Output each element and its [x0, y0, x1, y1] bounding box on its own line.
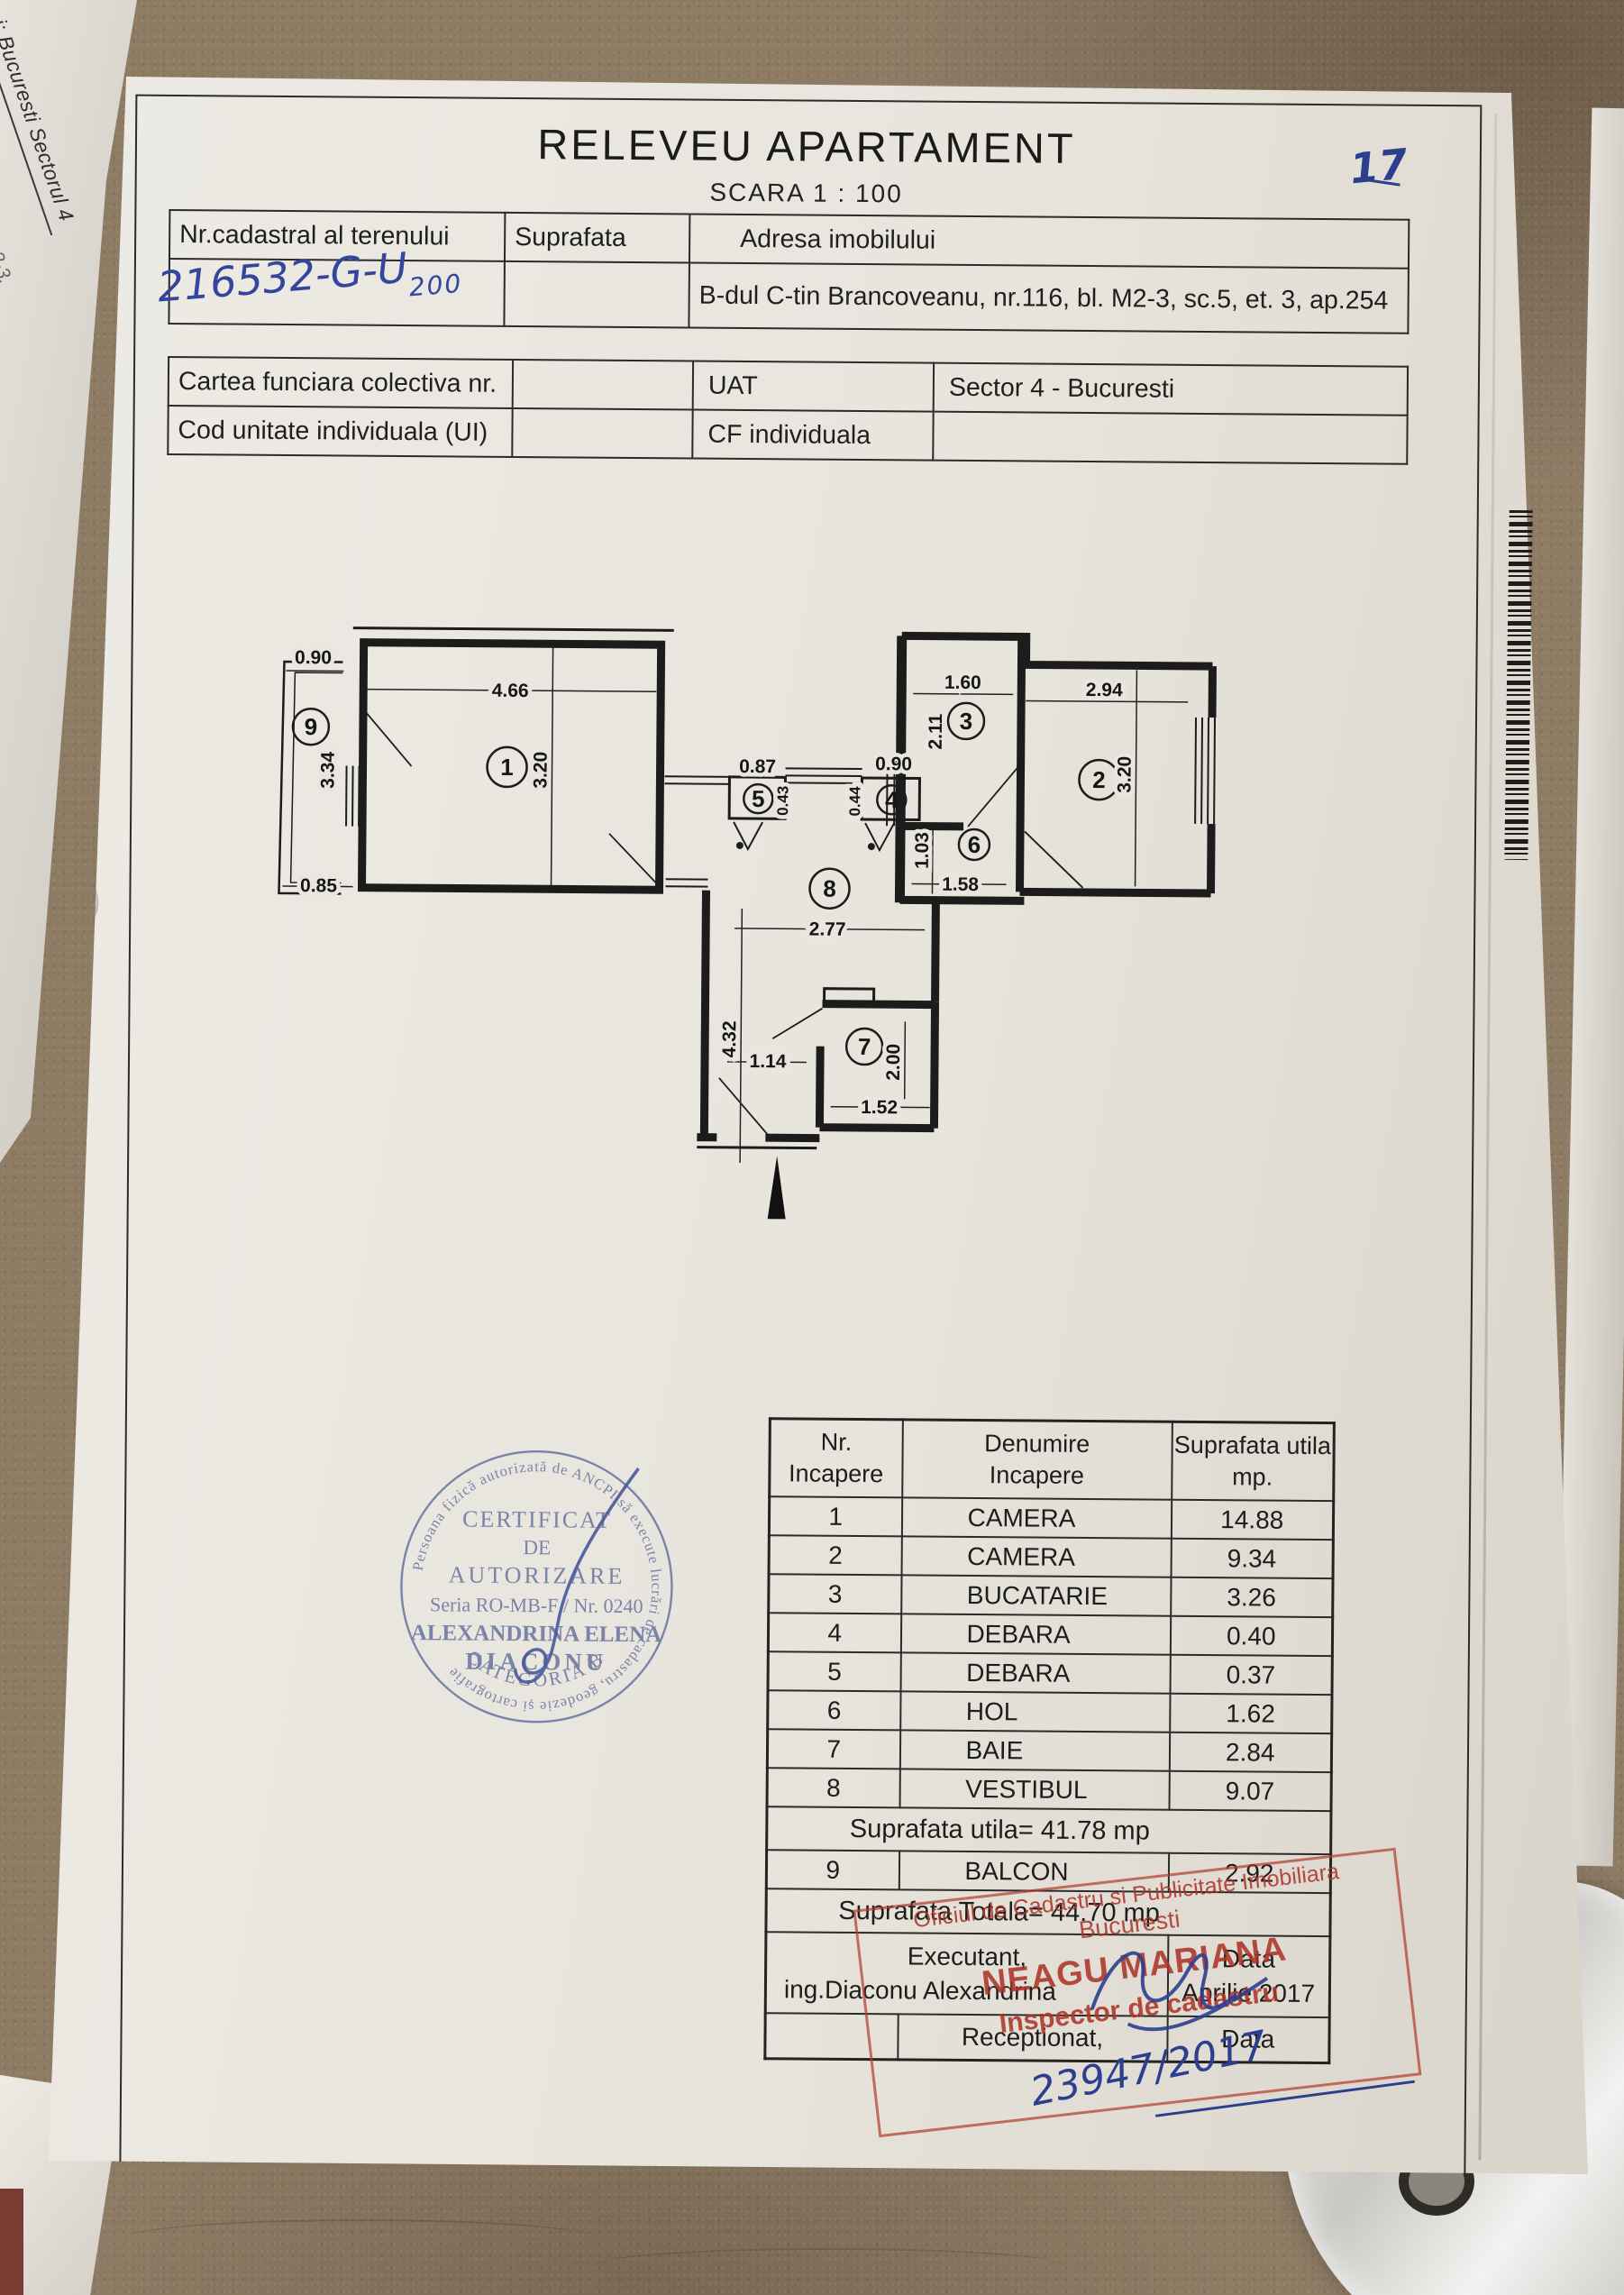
- table-row: 4DEBARA0.40: [768, 1613, 1332, 1656]
- paper-fold-line: [1478, 114, 1497, 2161]
- dim-debara4-height: 0.44: [846, 786, 863, 817]
- floor-plan: 1 2 3 4 5 6 7 8 9 0.90 4.66 3.34 3.20 0.…: [261, 618, 1275, 1257]
- cartea-funciara-label: Cartea funciara colectiva nr.: [169, 357, 513, 408]
- table-row: 3BUCATARIE3.26: [769, 1574, 1333, 1617]
- room-number-8: 8: [823, 875, 836, 902]
- cadastral-number-suffix: 200: [408, 269, 464, 303]
- punch-hole: [53, 874, 98, 930]
- surface-wrinkle: [126, 2219, 595, 2257]
- dim-balcony-bottom: 0.85: [300, 875, 337, 896]
- dim-bath-height: 2.00: [883, 1044, 904, 1081]
- room-number-3: 3: [960, 708, 973, 735]
- subtotal-row: Suprafata utila= 41.78 mp: [767, 1806, 1331, 1854]
- room-number-5: 5: [752, 785, 765, 812]
- table-row: 1CAMERA14.88: [769, 1496, 1333, 1540]
- dim-bath-door: 1.14: [749, 1051, 786, 1072]
- room-number-6: 6: [968, 831, 981, 858]
- barcode: [1504, 510, 1532, 860]
- side-note-text-2: 2-3,: [0, 249, 16, 287]
- room-number-9: 9: [305, 713, 318, 740]
- dim-room2-width: 2.94: [1086, 680, 1123, 700]
- document-paper: 17 RELEVEU APARTAMENT SCARA 1 : 100 Nr.c…: [27, 54, 1595, 2217]
- header-nr-incapere: Nr.Incapere: [770, 1419, 903, 1498]
- stamp-line-de: DE: [523, 1536, 551, 1559]
- dim-hol-width: 1.58: [942, 874, 979, 895]
- empty-cell: [513, 360, 693, 410]
- dim-hol-height: 1.03: [912, 832, 933, 869]
- stamp-line-autorizare: AUTORIZARE: [449, 1561, 625, 1589]
- address-cell: B-dul C-tin Brancoveanu, nr.116, bl. M2-…: [689, 262, 1409, 333]
- col-suprafata: Suprafata: [505, 213, 689, 263]
- room-number-4: 4: [885, 786, 899, 813]
- dim-bath-width: 1.52: [861, 1097, 898, 1118]
- certification-stamp: Persoana fizică autorizată de ANCPI să e…: [382, 1432, 691, 1742]
- suprafata-cell: [504, 261, 689, 328]
- header-suprafata: Suprafata utilamp.: [1172, 1422, 1335, 1501]
- document-title: RELEVEU APARTAMENT: [135, 116, 1478, 177]
- room-number-7: 7: [858, 1033, 871, 1060]
- table-row: 7BAIE2.84: [767, 1729, 1331, 1772]
- dim-debara5-width: 0.87: [739, 756, 776, 777]
- table-row: 5DEBARA0.37: [768, 1651, 1332, 1695]
- stamp-line-seria: Seria RO-MB-F / Nr. 0240: [430, 1593, 643, 1617]
- dim-room1-height: 3.20: [530, 752, 551, 789]
- header-denumire: DenumireIncapere: [902, 1420, 1172, 1500]
- dim-vestibul-height: 4.32: [719, 1020, 740, 1057]
- book-spine: [0, 2189, 23, 2295]
- land-book-table: Cartea funciara colectiva nr. UAT Sector…: [167, 356, 1409, 465]
- dim-balcony-top: 0.90: [295, 647, 332, 668]
- dim-kitchen-width: 1.60: [944, 672, 981, 693]
- cf-individuala-value: [933, 412, 1407, 464]
- dim-kitchen-height: 2.11: [926, 713, 946, 749]
- empty-cell: [512, 408, 692, 459]
- dim-debara4-width: 0.90: [875, 754, 912, 774]
- room-number-2: 2: [1092, 766, 1106, 793]
- cf-individuala-label: CF individuala: [692, 410, 933, 461]
- col-adresa: Adresa imobilului: [689, 214, 1409, 268]
- dim-vestibul-width: 2.77: [809, 919, 846, 940]
- dim-balcony-left: 3.34: [317, 752, 338, 789]
- photo-background: i: Bucuresti Sectorul 4 2-3, 17 RELEVEU …: [0, 0, 1624, 2295]
- uat-label: UAT: [693, 361, 934, 412]
- dim-room1-width: 4.66: [492, 681, 529, 701]
- document-content: 17 RELEVEU APARTAMENT SCARA 1 : 100 Nr.c…: [11, 49, 1596, 2225]
- stamp-line-name1: ALEXANDRINA ELENA: [411, 1621, 662, 1647]
- surface-wrinkle: [595, 2248, 1063, 2282]
- cod-unitate-label: Cod unitate individuala (UI): [168, 406, 512, 457]
- table-row: 6HOL1.62: [768, 1690, 1332, 1733]
- table-row: 8VESTIBUL9.07: [767, 1768, 1331, 1811]
- uat-value: Sector 4 - Bucuresti: [934, 363, 1408, 416]
- dim-debara5-height: 0.43: [774, 786, 791, 816]
- side-note-text: i: Bucuresti Sectorul 4: [0, 14, 81, 235]
- room-number-1: 1: [500, 754, 514, 781]
- dim-room2-height: 3.20: [1114, 756, 1135, 793]
- table-row: 2CAMERA9.34: [769, 1535, 1333, 1578]
- stamp-line-certificat: CERTIFICAT: [462, 1506, 612, 1533]
